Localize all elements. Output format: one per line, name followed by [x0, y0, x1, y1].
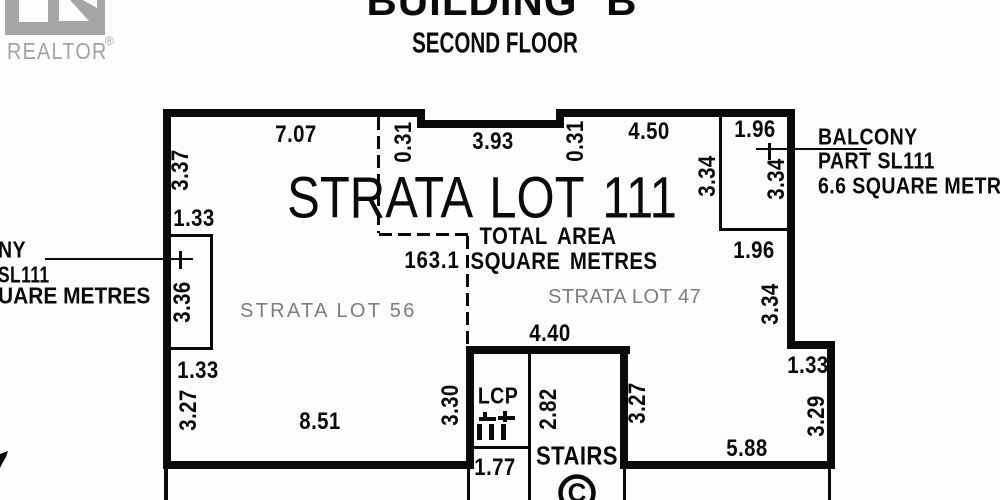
- svg-text:C: C: [568, 478, 587, 500]
